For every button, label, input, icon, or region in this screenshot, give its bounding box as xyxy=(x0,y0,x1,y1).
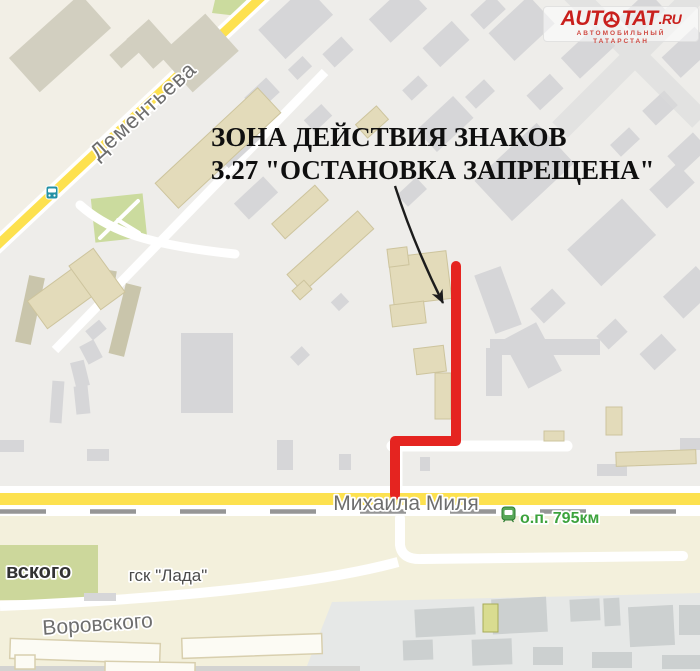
logo-tld: .RU xyxy=(659,8,682,30)
building xyxy=(472,638,513,665)
autotat-logo: AUT TAT.RU АВТОМОБИЛЬНЫЙ ТАТАРСТАН xyxy=(543,6,699,42)
building xyxy=(182,634,323,659)
building xyxy=(277,440,293,470)
building xyxy=(74,385,91,414)
building xyxy=(662,655,700,669)
building xyxy=(603,598,620,627)
building xyxy=(15,655,35,669)
logo-wordmark: AUT TAT.RU xyxy=(548,8,694,30)
zone-annotation-line1: ЗОНА ДЕЙСТВИЯ ЗНАКОВ xyxy=(211,122,567,152)
map-canvas: Дементьева Михаила Миля о.п. 795км гск "… xyxy=(0,0,700,671)
rail-stop-label: о.п. 795км xyxy=(520,510,599,527)
building xyxy=(544,431,564,441)
building xyxy=(606,407,622,435)
building xyxy=(533,647,563,665)
logo-text-right: TAT xyxy=(621,8,657,30)
building xyxy=(181,333,233,413)
building xyxy=(679,605,700,635)
building xyxy=(414,345,447,374)
map-screenshot: Дементьева Михаила Миля о.п. 795км гск "… xyxy=(0,0,700,671)
building xyxy=(592,652,632,668)
logo-text-left: AUT xyxy=(561,8,603,30)
street-label-partial: вского xyxy=(6,561,71,583)
building xyxy=(403,639,434,660)
building xyxy=(84,593,116,601)
street-label-mikhaila-milya: Михаила Миля xyxy=(333,492,479,515)
building xyxy=(616,450,696,467)
building xyxy=(105,661,195,671)
building xyxy=(569,598,600,622)
logo-tagline: АВТОМОБИЛЬНЫЙ ТАТАРСТАН xyxy=(548,30,694,46)
building xyxy=(435,373,451,419)
building xyxy=(483,604,498,632)
zone-annotation-line2: 3.27 "ОСТАНОВКА ЗАПРЕЩЕНА" xyxy=(211,155,655,185)
building xyxy=(680,438,700,450)
gsk-lada-label: гск "Лада" xyxy=(129,566,208,585)
steering-wheel-icon xyxy=(603,11,620,28)
building xyxy=(87,449,109,461)
building xyxy=(628,605,675,647)
building xyxy=(339,454,351,470)
building xyxy=(387,247,409,267)
building xyxy=(390,301,426,327)
transit-stop-icon xyxy=(46,186,58,199)
building xyxy=(420,457,430,471)
building xyxy=(414,606,475,637)
building xyxy=(486,348,502,396)
building xyxy=(491,597,548,635)
rail-stop-icon xyxy=(502,507,515,522)
building xyxy=(0,440,24,452)
